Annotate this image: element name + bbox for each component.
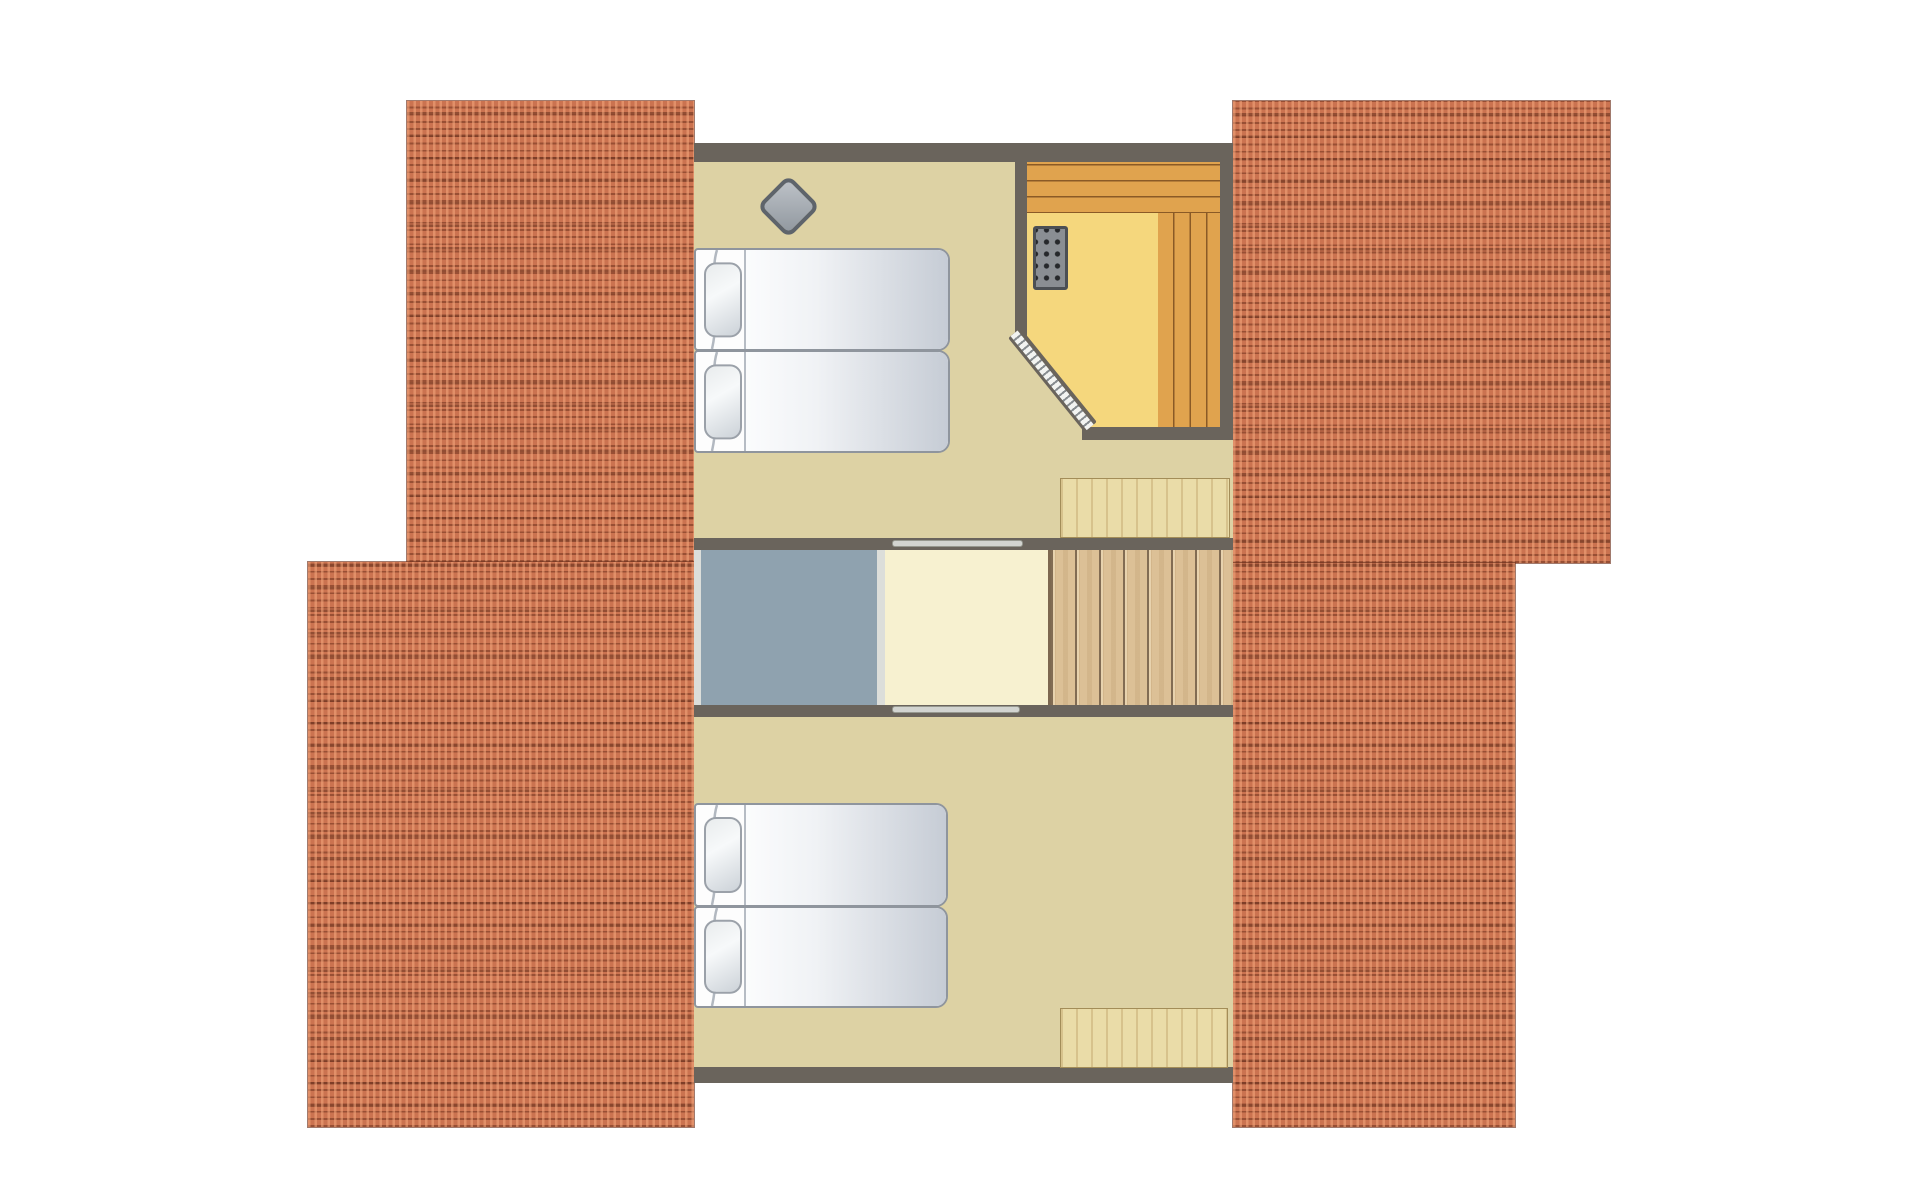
bed-pillow: [704, 364, 742, 439]
sliding-door-top: [892, 540, 1023, 547]
roof-right-bottom: [1233, 563, 1515, 1127]
void-opening: [694, 550, 877, 705]
sauna-bottom-wall: [1082, 427, 1233, 440]
dresser-bottom: [1060, 1008, 1228, 1068]
sauna-left-wall: [1015, 162, 1027, 339]
bed-pillow: [704, 817, 742, 893]
exterior-wall-top: [694, 143, 1233, 162]
roof-right-top: [1233, 101, 1610, 563]
glass-divider-mid: [877, 550, 885, 705]
dresser-top: [1060, 478, 1230, 538]
bed-duvet: [744, 908, 946, 1006]
sauna-heater: [1033, 226, 1068, 290]
roof-left-top: [407, 101, 694, 562]
bed-duvet: [744, 805, 946, 905]
bed-top-2: [694, 350, 950, 453]
bed-bottom-1: [694, 803, 948, 907]
landing-floor: [885, 547, 1048, 706]
floor-plan-canvas: [0, 0, 1920, 1200]
bed-top-1: [694, 248, 950, 351]
sauna-right-wall: [1220, 162, 1233, 440]
sauna-bench-right: [1158, 213, 1220, 427]
bed-pillow: [704, 262, 742, 337]
staircase: [1048, 550, 1233, 705]
bed-pillow: [704, 920, 742, 994]
roof-left-bottom: [308, 562, 694, 1127]
bed-duvet: [744, 352, 948, 451]
sliding-door-bottom: [892, 706, 1020, 713]
sauna-bench-top: [1027, 162, 1220, 213]
bed-duvet: [744, 250, 948, 349]
exterior-wall-bottom: [694, 1067, 1233, 1083]
bed-bottom-2: [694, 906, 948, 1008]
glass-divider-left: [694, 550, 701, 705]
